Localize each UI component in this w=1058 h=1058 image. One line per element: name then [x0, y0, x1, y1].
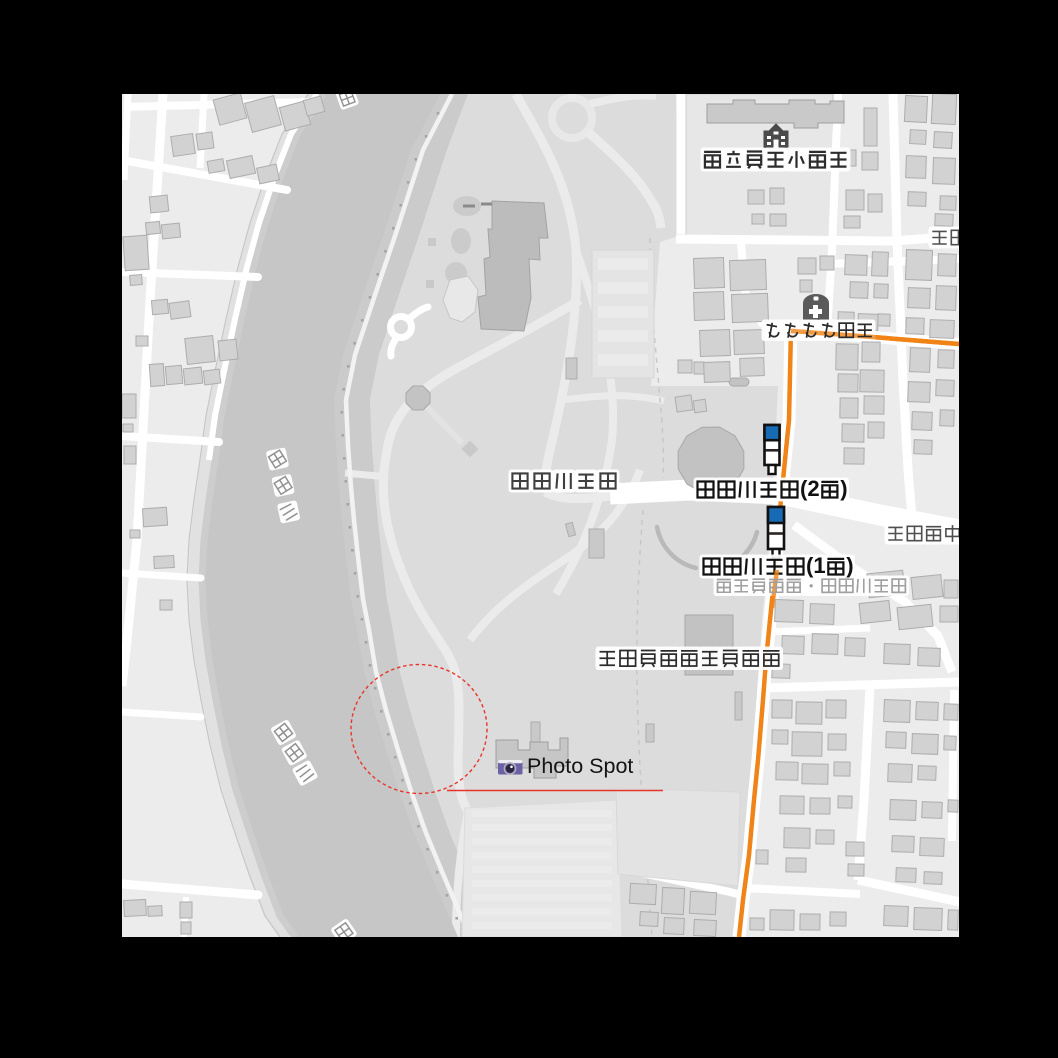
svg-text:): ) — [840, 476, 847, 501]
svg-text:(2: (2 — [800, 476, 820, 501]
svg-text:Photo Spot: Photo Spot — [527, 754, 633, 778]
svg-text:(1: (1 — [806, 553, 826, 578]
svg-text:): ) — [846, 553, 853, 578]
